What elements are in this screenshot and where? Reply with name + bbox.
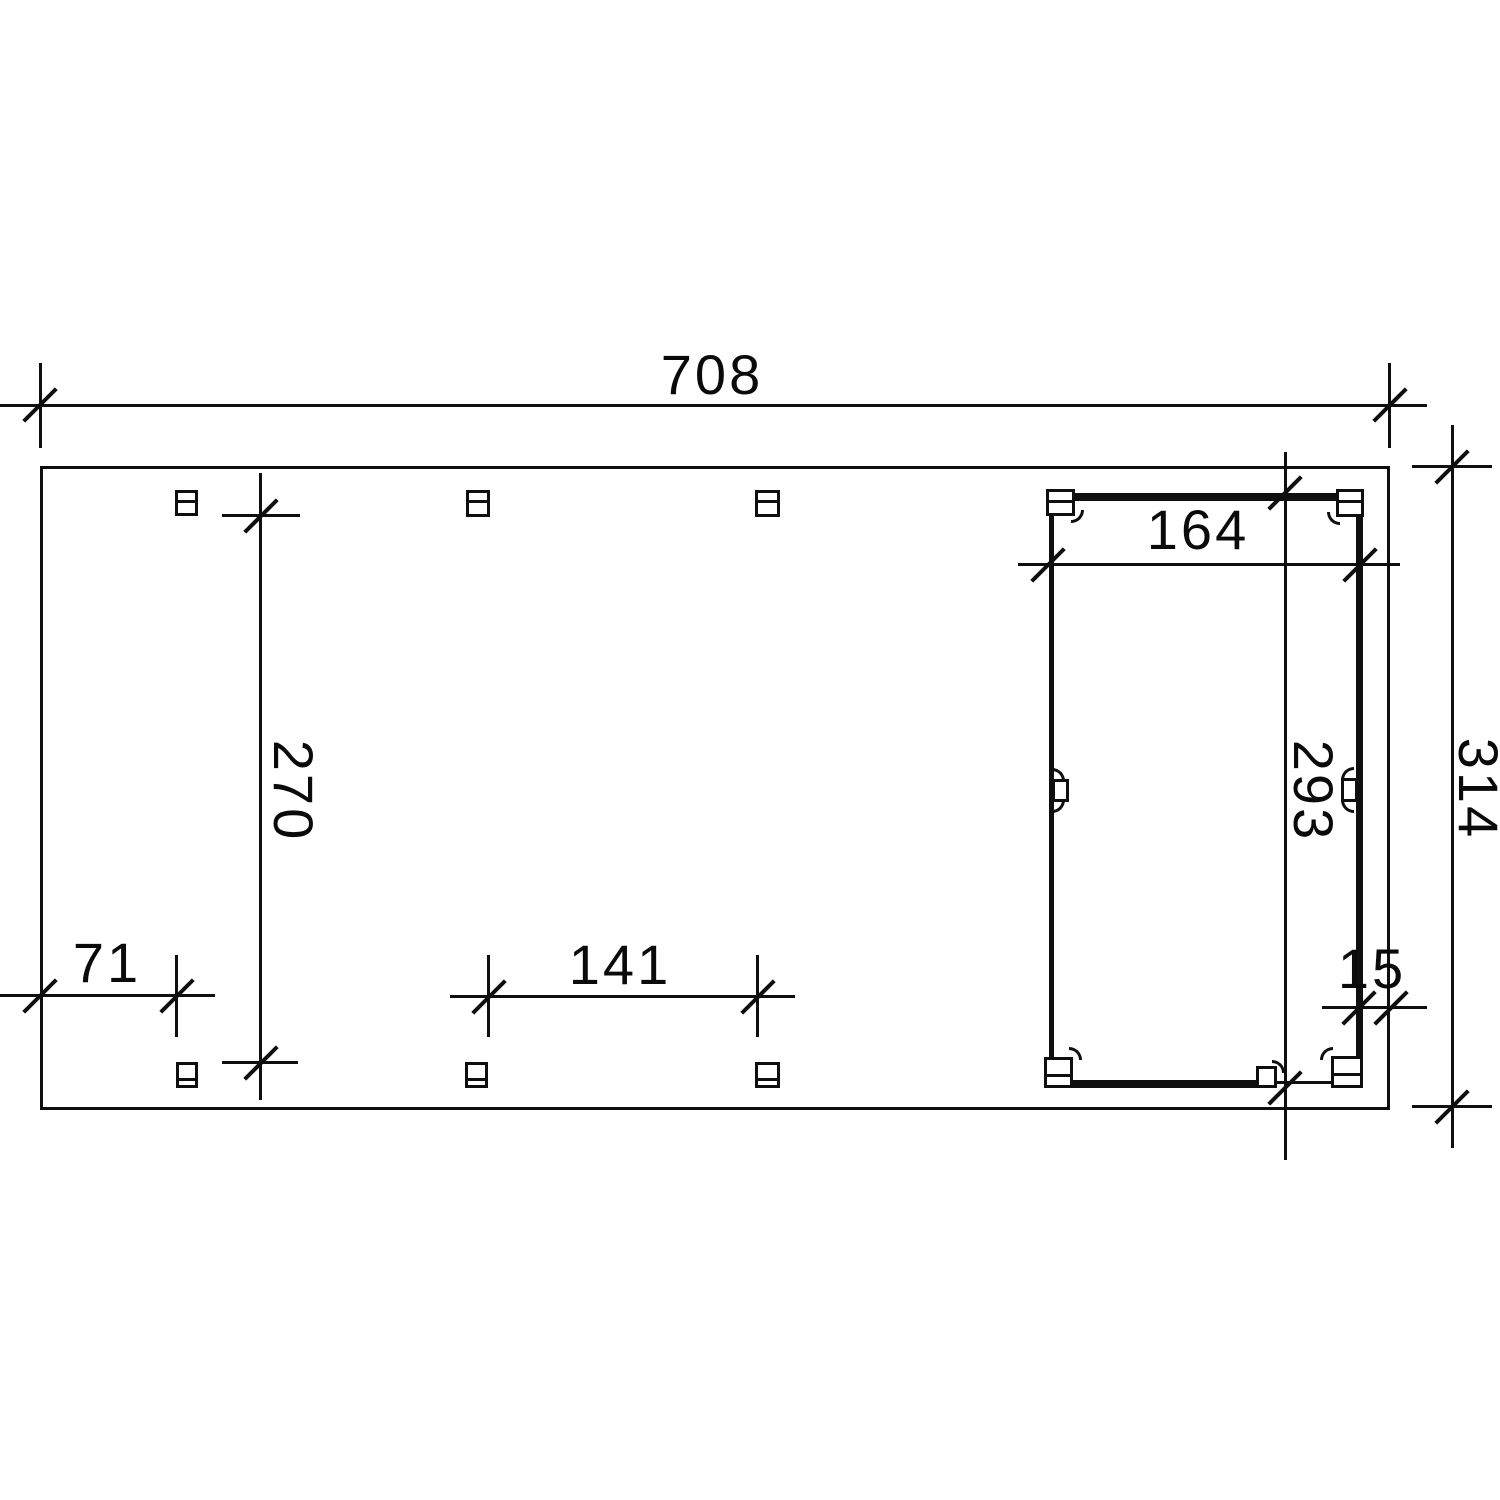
post-bottom-middle — [465, 1062, 488, 1088]
post-divider — [1047, 1074, 1070, 1077]
post-divider — [758, 1078, 777, 1081]
post-divider — [1049, 500, 1072, 503]
dim-label-clear-depth: 270 — [264, 691, 322, 891]
post-top-middle — [466, 490, 490, 517]
dim-label-total-depth: 314 — [1449, 689, 1500, 889]
post-bottom-right — [755, 1062, 780, 1088]
dimension-line-left-offset — [0, 994, 215, 997]
post-divider — [178, 500, 195, 503]
post-top-right — [755, 490, 780, 517]
room-corner-post-top-right — [1336, 489, 1364, 517]
post-divider — [758, 500, 777, 503]
dimension-line-room-width — [1018, 563, 1400, 566]
dim-label-room-depth: 293 — [1284, 691, 1342, 891]
dim-label-right-offset: 15 — [1302, 940, 1442, 998]
post-bottom-left — [176, 1062, 198, 1088]
dim-label-mid-spacing: 141 — [520, 936, 720, 994]
room-corner-post-bottom-right — [1331, 1056, 1363, 1088]
room-mid-post-left-wall — [1052, 779, 1069, 802]
post-divider — [1339, 500, 1361, 503]
dim-label-total-width: 708 — [612, 346, 812, 404]
post-top-left — [175, 490, 198, 516]
floor-plan-canvas: 708 164 71 141 15 270 293 314 — [0, 0, 1500, 1500]
post-divider — [179, 1078, 195, 1081]
dimension-line-right-offset — [1322, 1006, 1427, 1009]
dim-label-room-width: 164 — [1098, 501, 1298, 559]
post-divider — [469, 500, 487, 503]
post-divider — [468, 1078, 485, 1081]
room-corner-post-bottom-left — [1044, 1057, 1073, 1088]
room-wall-bottom-thick — [1071, 1080, 1257, 1088]
dim-label-left-offset: 71 — [27, 934, 187, 992]
post-divider — [1334, 1073, 1360, 1076]
